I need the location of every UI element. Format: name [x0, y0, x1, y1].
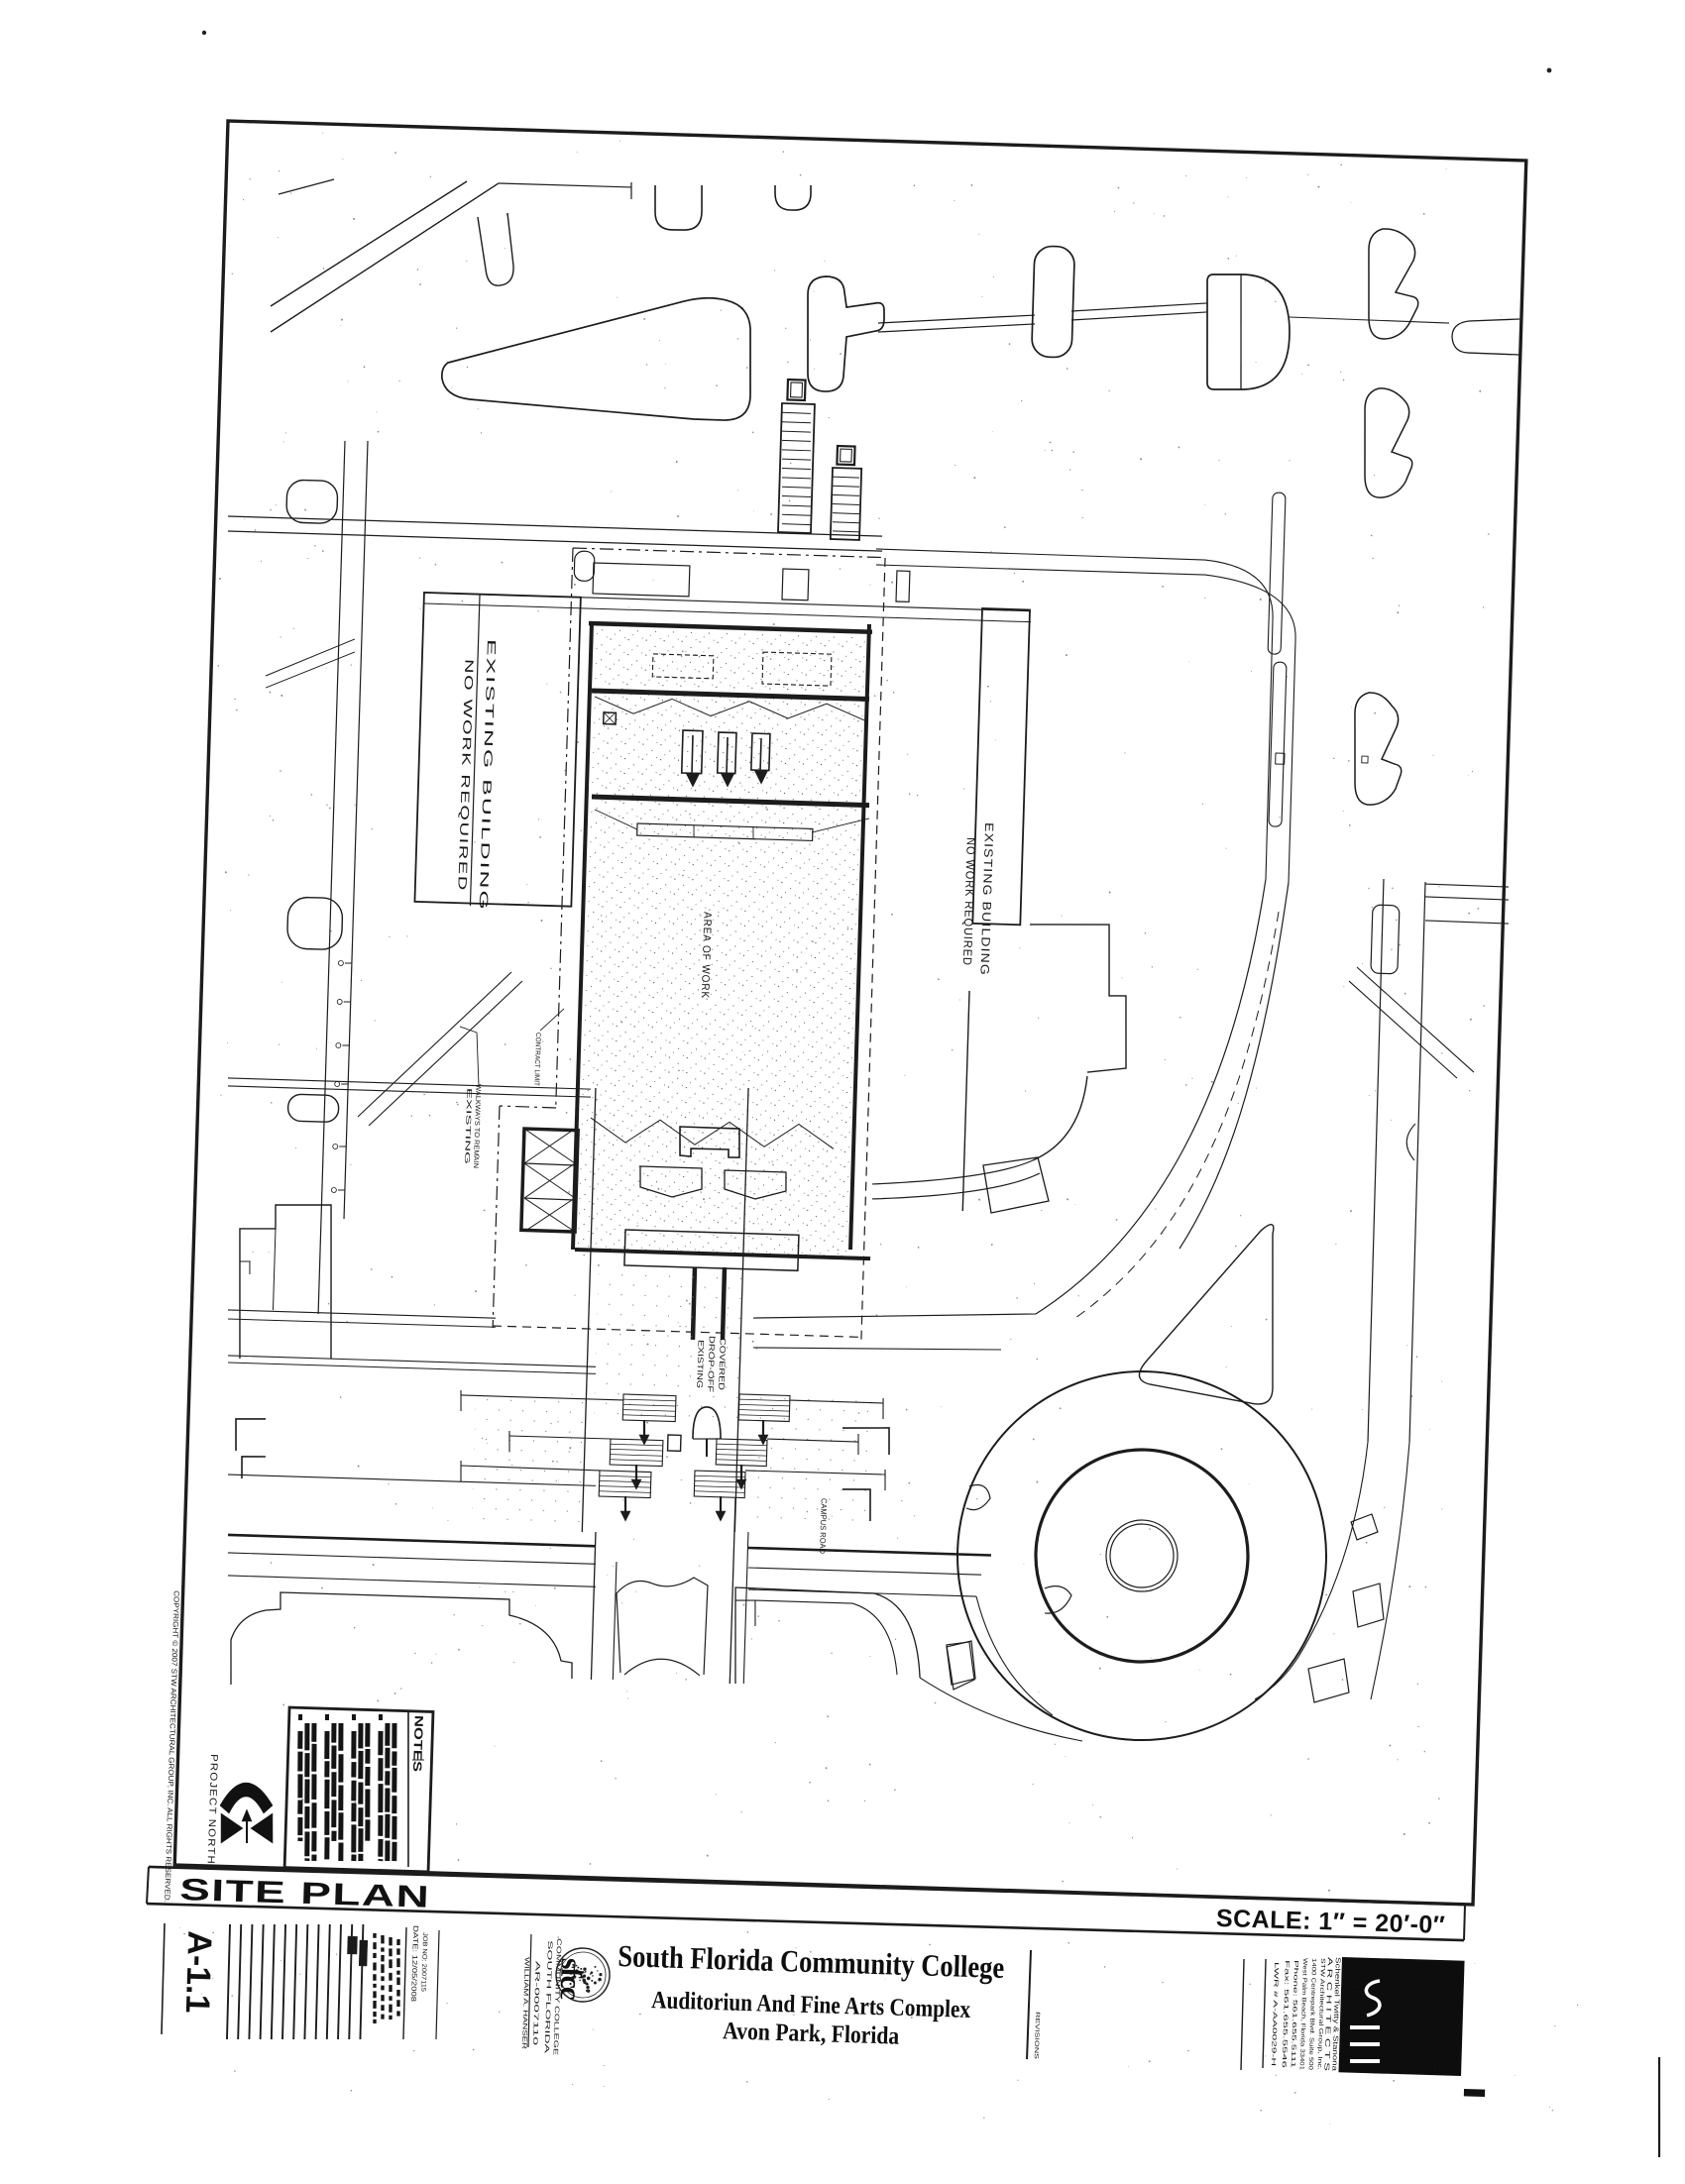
svg-text:NOTES: NOTES: [410, 1715, 426, 1772]
svg-text:EXISTING: EXISTING: [695, 1340, 705, 1388]
svg-text:A-1.1: A-1.1: [178, 1930, 219, 2014]
svg-text:DROP-OFF: DROP-OFF: [706, 1336, 717, 1392]
svg-text:sfcc: sfcc: [553, 1957, 587, 2000]
svg-text:Avon Park, Florida: Avon Park, Florida: [723, 2018, 900, 2049]
svg-text:CAMPUS ROAD: CAMPUS ROAD: [818, 1498, 829, 1554]
svg-text:COVERED: COVERED: [717, 1338, 728, 1391]
